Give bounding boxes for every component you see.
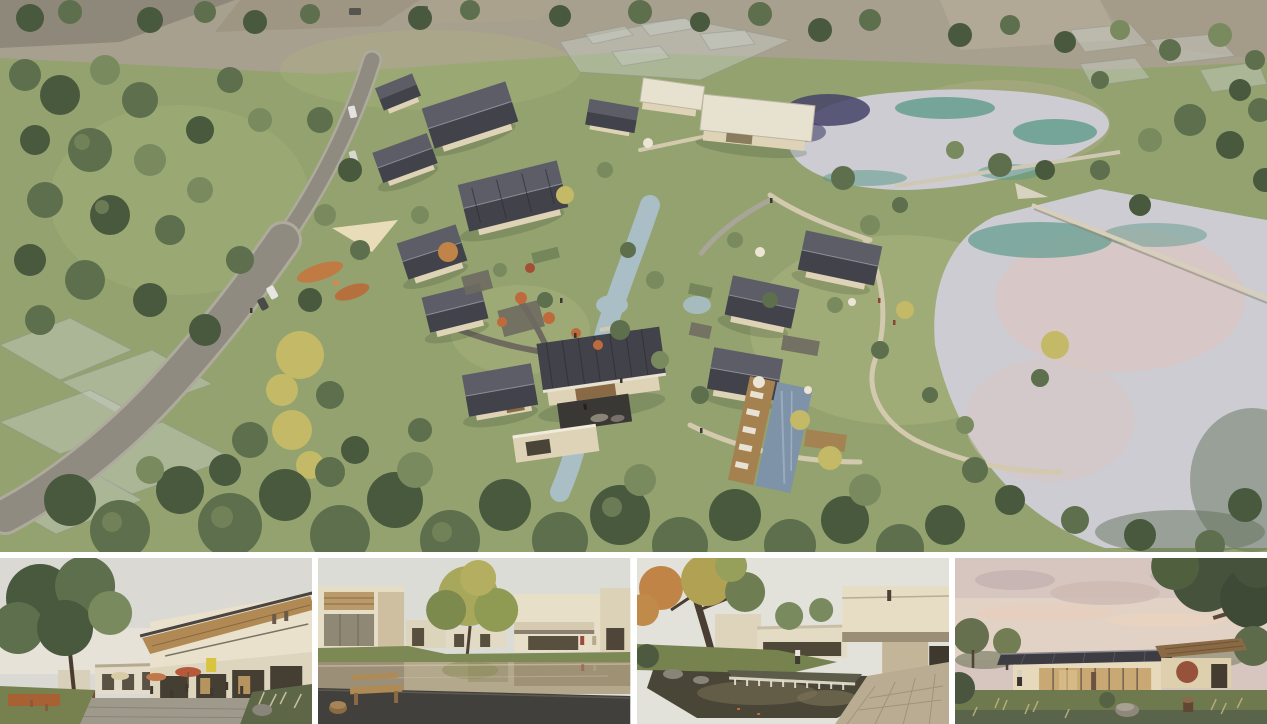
thumbnail-pond-waterfall (637, 558, 949, 724)
aerial-view (0, 0, 1267, 552)
thumbnail-reflecting-pool (318, 558, 630, 724)
thumbnail-street-cafe (0, 558, 312, 724)
thumbnail-row (0, 558, 1267, 724)
street-cafe-rendering (0, 558, 312, 724)
yellow-sign (206, 658, 216, 672)
pond-waterfall-rendering (637, 558, 949, 724)
presentation-board (0, 0, 1267, 724)
reflecting-pool-rendering (318, 558, 630, 724)
dusk-pavilion-rendering (955, 558, 1267, 724)
planter-wall (8, 694, 60, 706)
person-tan (592, 636, 596, 645)
red-maple (1176, 661, 1198, 683)
aerial-view-rendering (0, 0, 1267, 552)
person-red (580, 636, 584, 645)
thumbnail-dusk-pavilion (955, 558, 1267, 724)
person-inside (1091, 672, 1096, 690)
balcony-person (887, 590, 891, 601)
